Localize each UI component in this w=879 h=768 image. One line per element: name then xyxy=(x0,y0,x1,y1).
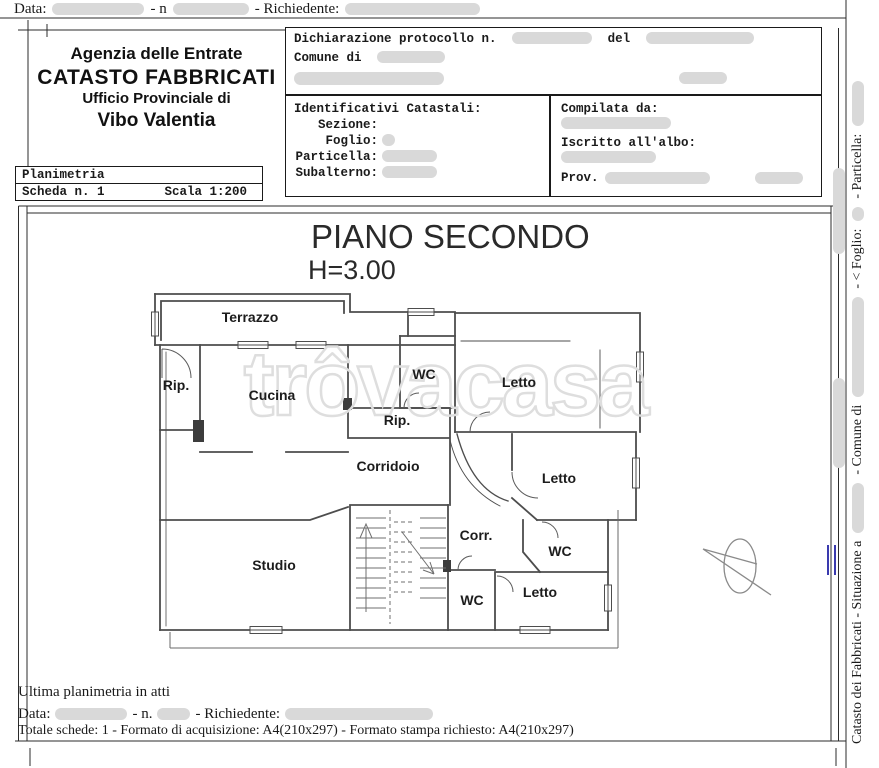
totale-schede-line: Totale schede: 1 - Formato di acquisizio… xyxy=(18,723,574,739)
room-label-wc-mid: WC xyxy=(548,543,571,559)
catasto-planimetria-document: { "colors": { "redaction": "#d9d9d9", "w… xyxy=(0,0,879,768)
footer-data-line: Data:- n.- Richiedente: xyxy=(18,706,438,723)
plan-height-label: H=3.00 xyxy=(308,255,396,285)
footer-richiedente-label: - Richiedente: xyxy=(195,706,280,722)
room-label-studio: Studio xyxy=(252,557,296,573)
north-compass-icon xyxy=(703,539,771,595)
redaction-bar xyxy=(852,81,864,126)
redaction-bar xyxy=(157,708,190,720)
staircase xyxy=(356,510,446,624)
room-label-letto2: Letto xyxy=(542,470,576,486)
redaction-bar xyxy=(285,708,433,720)
ultima-planimetria-note: Ultima planimetria in atti xyxy=(18,684,170,701)
balcony-outline xyxy=(170,510,618,648)
side-margin-text: Catasto dei Fabbricati - Situazione a - … xyxy=(848,0,868,744)
room-label-corridoio: Corridoio xyxy=(357,458,420,474)
room-label-rip1: Rip. xyxy=(163,377,189,393)
room-label-rip2: Rip. xyxy=(384,412,410,428)
side-segment-particella: - Particella: xyxy=(850,134,866,199)
footer-n-label: - n. xyxy=(132,706,152,722)
room-label-wc-top: WC xyxy=(412,366,435,382)
side-segment-comune: - Comune di xyxy=(850,405,866,475)
redaction-bar xyxy=(55,708,127,720)
room-label-wc-bottom: WC xyxy=(460,592,483,608)
redaction-bar xyxy=(852,297,864,397)
room-label-terrazzo: Terrazzo xyxy=(222,309,279,325)
footer-data-label: Data: xyxy=(18,706,50,722)
room-label-letto1: Letto xyxy=(502,374,536,390)
plan-title: PIANO SECONDO xyxy=(311,218,590,255)
redaction-bar xyxy=(833,168,845,254)
redaction-bar xyxy=(852,207,864,221)
redaction-bar xyxy=(833,378,845,468)
trovacasa-watermark: trôvacasa xyxy=(244,333,650,435)
redaction-bar xyxy=(852,483,864,533)
side-segment-catasto: Catasto dei Fabbricati - Situazione a xyxy=(850,541,866,744)
side-segment-foglio: - < Foglio: xyxy=(850,229,866,289)
room-label-cucina: Cucina xyxy=(249,387,296,403)
floor-plan-canvas: PIANO SECONDO H=3.00 xyxy=(0,0,879,768)
room-label-letto3: Letto xyxy=(523,584,557,600)
blue-marking xyxy=(827,545,836,575)
room-label-corr: Corr. xyxy=(460,527,493,543)
